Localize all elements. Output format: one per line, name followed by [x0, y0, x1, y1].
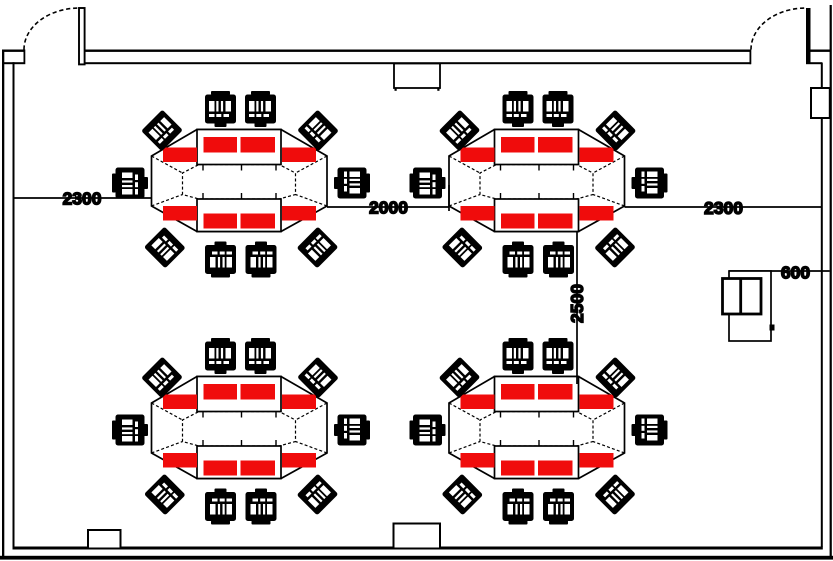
- svg-text:600: 600: [781, 263, 810, 283]
- svg-text:2300: 2300: [704, 198, 743, 218]
- svg-text:2000: 2000: [369, 198, 408, 218]
- svg-text:2300: 2300: [63, 189, 102, 209]
- svg-text:2500: 2500: [567, 284, 587, 323]
